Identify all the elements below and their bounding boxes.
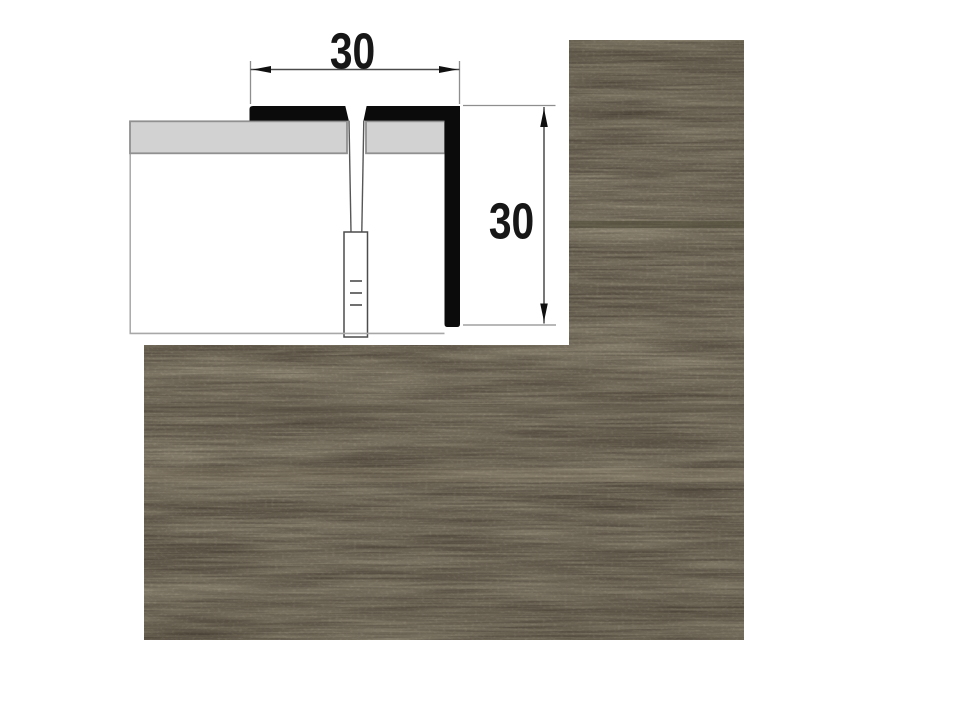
svg-text:30: 30	[489, 192, 534, 249]
svg-text:30: 30	[330, 22, 375, 79]
